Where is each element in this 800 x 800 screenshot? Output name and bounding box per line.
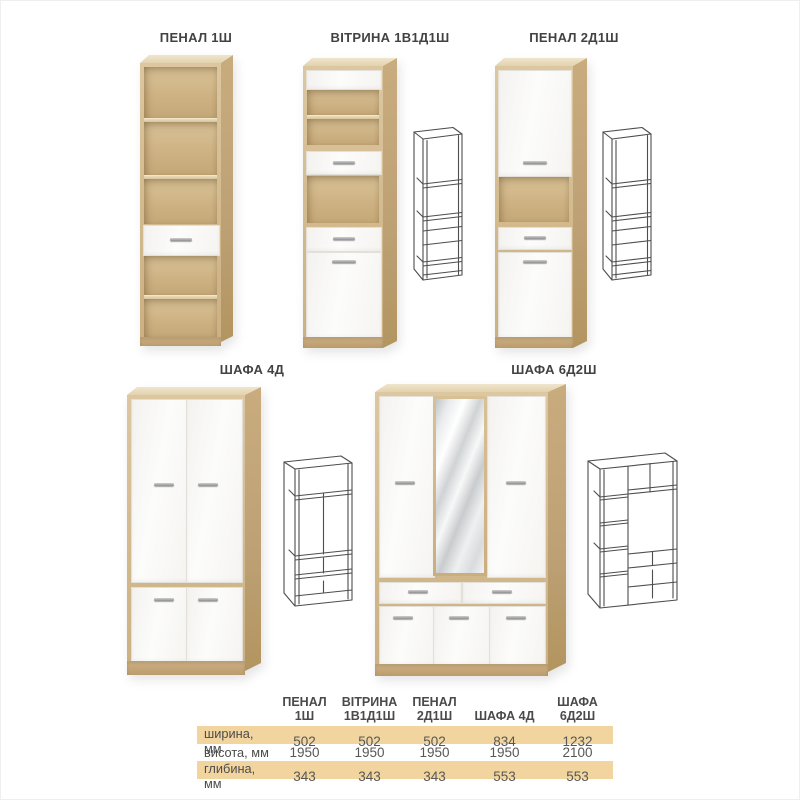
shelf-compartment: [144, 179, 217, 224]
door-front: [186, 399, 243, 583]
drawer-handle: [170, 238, 192, 241]
spec-col-header: ШАФА 6Д2Ш: [542, 695, 613, 723]
door-handle: [449, 616, 469, 619]
spec-cell: 1950: [467, 745, 542, 760]
door-handle: [198, 598, 218, 601]
door-handle: [506, 616, 526, 619]
penal-internal-structure-drawing: [599, 126, 655, 282]
cabinet-side-panel: [383, 58, 397, 348]
door-handle: [154, 483, 174, 486]
spec-cell: 553: [467, 769, 542, 784]
spec-table-body: ширина, мм5025025028341232висота, мм1950…: [197, 726, 613, 779]
product-label-shafa-6d2sh: ШАФА 6Д2Ш: [464, 362, 644, 377]
drawer-front: [306, 227, 382, 252]
mirror-door: [433, 396, 487, 576]
door-handle: [393, 616, 413, 619]
spec-cell: 1950: [337, 745, 402, 760]
product-label-penal-2d1sh: ПЕНАЛ 2Д1Ш: [484, 30, 664, 45]
shelf-compartment: [144, 122, 217, 175]
door-front: [379, 396, 435, 578]
shafa-6d2sh-internal-structure-drawing: [581, 450, 681, 613]
door-handle: [395, 481, 415, 484]
cabinet-front: [140, 63, 221, 346]
cabinet-top-panel: [303, 58, 397, 66]
spec-header-row: ПЕНАЛ 1ШВІТРИНА 1В1Д1ШПЕНАЛ 2Д1ШШАФА 4ДШ…: [197, 686, 613, 726]
drawer-front: [379, 582, 462, 604]
spec-cell: 343: [337, 769, 402, 784]
spec-table: ПЕНАЛ 1ШВІТРИНА 1В1Д1ШПЕНАЛ 2Д1ШШАФА 4ДШ…: [197, 686, 613, 779]
open-niche: [499, 177, 569, 222]
drawer-front: [306, 151, 382, 175]
product-image-vitryna: [303, 58, 397, 348]
door-front: [131, 399, 188, 583]
spec-row-label: глибина, мм: [197, 761, 272, 791]
spec-col-header: ШАФА 4Д: [467, 709, 542, 723]
product-image-penal-2d1sh: [495, 58, 587, 348]
door-front: [306, 252, 382, 339]
door-handle: [332, 260, 356, 263]
door-handle: [523, 260, 547, 263]
cabinet-front: [127, 395, 245, 675]
cabinet-side-panel: [221, 55, 233, 342]
door-front: [489, 606, 546, 666]
cabinet-front: [495, 66, 573, 348]
product-label-shafa-4d: ШАФА 4Д: [162, 362, 342, 377]
spec-row-label: висота, мм: [197, 745, 272, 760]
cabinet-top-panel: [140, 55, 233, 63]
drawer-front: [498, 227, 572, 250]
drawer-handle: [333, 237, 355, 240]
product-label-vitryna: ВІТРИНА 1В1Д1Ш: [300, 30, 480, 45]
door-front: [498, 70, 572, 177]
spec-col-header: ПЕНАЛ 1Ш: [272, 695, 337, 723]
product-image-shafa-6d2sh: [375, 384, 566, 676]
spec-cell: 1950: [402, 745, 467, 760]
door-handle: [198, 483, 218, 486]
product-image-penal-1sh: [140, 55, 233, 346]
cabinet-top-panel: [375, 384, 566, 392]
product-label-penal-1sh: ПЕНАЛ 1Ш: [116, 30, 276, 45]
cabinet-side-panel: [548, 384, 566, 672]
cabinet-plinth: [495, 337, 573, 348]
spec-row: глибина, мм343343343553553: [197, 761, 613, 779]
spec-cell: 2100: [542, 745, 613, 760]
door-handle: [154, 598, 174, 601]
drawer-handle: [408, 590, 428, 593]
shelf-compartment: [144, 67, 217, 118]
cabinet-side-panel: [245, 387, 261, 671]
spec-row: ширина, мм5025025028341232: [197, 726, 613, 744]
door-handle: [523, 161, 547, 164]
shafa-4d-internal-structure-drawing: [278, 454, 356, 612]
drawer-front: [462, 582, 546, 604]
cabinet-top-panel: [495, 58, 587, 66]
spec-col-header: ВІТРИНА 1В1Д1Ш: [337, 695, 402, 723]
cabinet-plinth: [127, 661, 245, 675]
shelf-compartment: [144, 299, 217, 337]
product-image-shafa-4d: [127, 387, 261, 675]
cabinet-side-panel: [573, 58, 587, 348]
spec-cell: 553: [542, 769, 613, 784]
spec-cell: 343: [402, 769, 467, 784]
cabinet-front: [303, 66, 383, 348]
drawer-handle: [492, 590, 512, 593]
flap-door-front: [306, 70, 382, 90]
drawer-front: [143, 225, 220, 256]
spec-cell: 343: [272, 769, 337, 784]
door-front: [498, 252, 572, 339]
drawer-handle: [524, 236, 546, 239]
spec-cell: 1950: [272, 745, 337, 760]
mirror-glass: [436, 399, 484, 573]
spec-col-header: ПЕНАЛ 2Д1Ш: [402, 695, 467, 723]
drawer-handle: [333, 161, 355, 164]
open-niche: [307, 176, 379, 223]
cabinet-top-panel: [127, 387, 261, 395]
door-front: [433, 606, 491, 666]
cabinet-plinth: [140, 337, 221, 346]
vitryna-internal-structure-drawing: [410, 126, 466, 282]
cabinet-plinth: [303, 337, 383, 348]
door-handle: [506, 481, 526, 484]
cabinet-plinth: [375, 664, 548, 676]
shelf-compartment: [307, 90, 379, 115]
door-front: [379, 606, 435, 666]
shelf-compartment: [144, 256, 217, 295]
door-front: [487, 396, 546, 578]
shelf-compartment: [307, 119, 379, 145]
spec-row: висота, мм19501950195019502100: [197, 744, 613, 762]
cabinet-front: [375, 392, 548, 676]
